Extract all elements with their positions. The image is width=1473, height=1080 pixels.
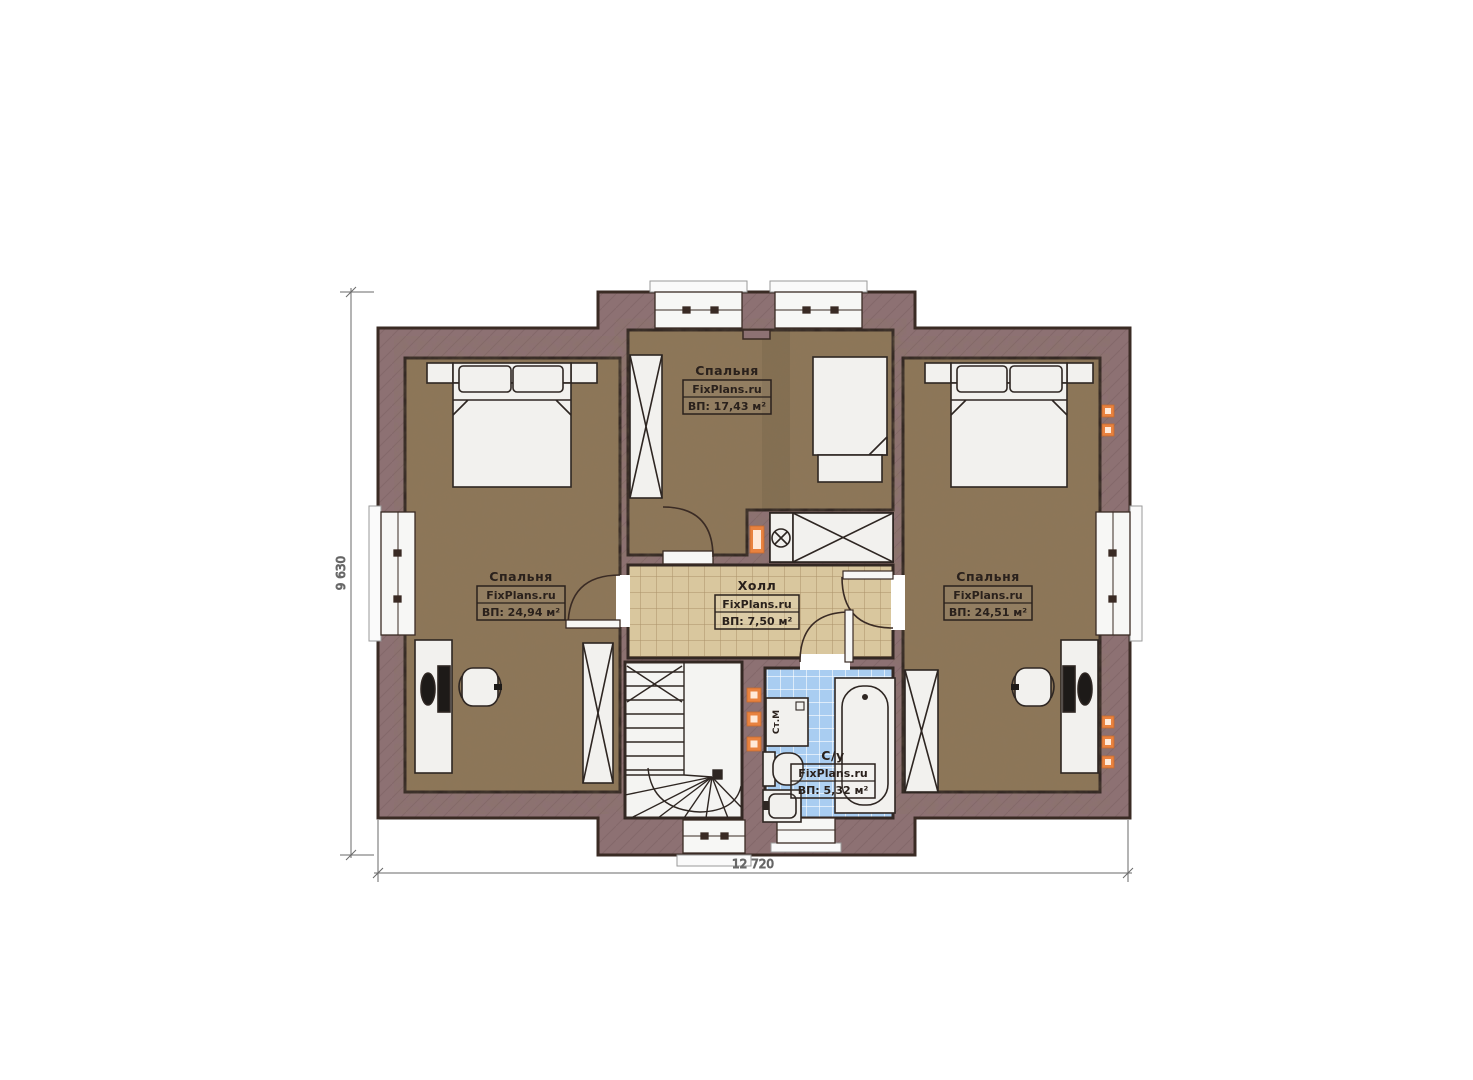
room-name: Спальня: [489, 569, 552, 584]
pillow: [1010, 366, 1062, 392]
wardrobe-right-bedroom: [905, 670, 938, 792]
door-leaf-right-bedroom: [843, 571, 893, 579]
nightstand: [925, 363, 951, 383]
label-bedroom-left: Спальня FixPlans.ru ВП: 24,94 м²: [477, 569, 565, 620]
area-label: ВП: 7,50 м²: [722, 615, 793, 628]
dimension-width-label: 12 720: [732, 857, 774, 871]
stairs-newel-post: [713, 770, 722, 779]
window-left: [381, 512, 415, 635]
bed-body: [453, 383, 571, 487]
door-leaf-bathroom: [845, 610, 853, 662]
door-opening-bathroom: [800, 654, 850, 670]
room-name: Спальня: [956, 569, 1019, 584]
window-right: [1096, 512, 1130, 635]
window-top-2: [775, 292, 862, 328]
wardrobe-top-bedroom: [630, 355, 662, 498]
pc-icon: [421, 673, 435, 705]
desk-left: [415, 640, 452, 773]
door-opening-left-bedroom: [616, 575, 630, 627]
office-chair-right: [1011, 668, 1054, 706]
door-opening-right-bedroom: [891, 575, 905, 630]
label-bedroom-top: Спальня FixPlans.ru ВП: 17,43 м²: [683, 363, 771, 414]
area-label: ВП: 5,32 м²: [798, 784, 869, 797]
room-name: Спальня: [695, 363, 758, 378]
pillow: [957, 366, 1007, 392]
double-bed-left: [427, 363, 597, 487]
single-bed-top: [813, 357, 887, 482]
window-bottom-stairs: [683, 820, 745, 853]
brand-label: FixPlans.ru: [722, 598, 791, 611]
window-top-1: [655, 292, 742, 328]
room-name: Холл: [738, 578, 777, 593]
pillow: [459, 366, 511, 392]
pc-icon: [1078, 673, 1092, 705]
brand-label: FixPlans.ru: [692, 383, 761, 396]
door-opening-top-bedroom: [663, 551, 713, 564]
floor-shading: [762, 331, 790, 509]
pillow: [513, 366, 563, 392]
floor-plan-page: Спальня FixPlans.ru ВП: 24,94 м² Спальня…: [0, 0, 1473, 1080]
nightstand: [1067, 363, 1093, 383]
floor-plan-drawing: Спальня FixPlans.ru ВП: 24,94 м² Спальня…: [0, 0, 1473, 1080]
washing-machine-label: Ст.М: [772, 710, 782, 734]
dimension-height-label: 9 630: [334, 556, 348, 590]
wardrobe-left-bedroom: [583, 643, 613, 783]
label-bedroom-right: Спальня FixPlans.ru ВП: 24,51 м²: [944, 569, 1032, 620]
monitor-icon: [438, 666, 450, 712]
nightstand: [571, 363, 597, 383]
wall-pillar: [743, 330, 770, 339]
area-label: ВП: 24,94 м²: [482, 606, 560, 619]
hall-closet: [770, 513, 893, 562]
area-label: ВП: 17,43 м²: [688, 400, 766, 413]
nightstand: [427, 363, 453, 383]
room-name: С/у: [821, 748, 844, 763]
bed-body: [951, 383, 1067, 487]
bed-foot-box: [818, 455, 882, 482]
area-label: ВП: 24,51 м²: [949, 606, 1027, 619]
door-leaf-left-bedroom: [566, 620, 620, 628]
office-chair-left: [459, 668, 502, 706]
bathtub-drain: [862, 694, 868, 700]
brand-label: FixPlans.ru: [486, 589, 555, 602]
brand-label: FixPlans.ru: [798, 767, 867, 780]
monitor-icon: [1063, 666, 1075, 712]
dimension-vertical: 9 630: [334, 287, 374, 860]
desk-right: [1061, 640, 1098, 773]
brand-label: FixPlans.ru: [953, 589, 1022, 602]
